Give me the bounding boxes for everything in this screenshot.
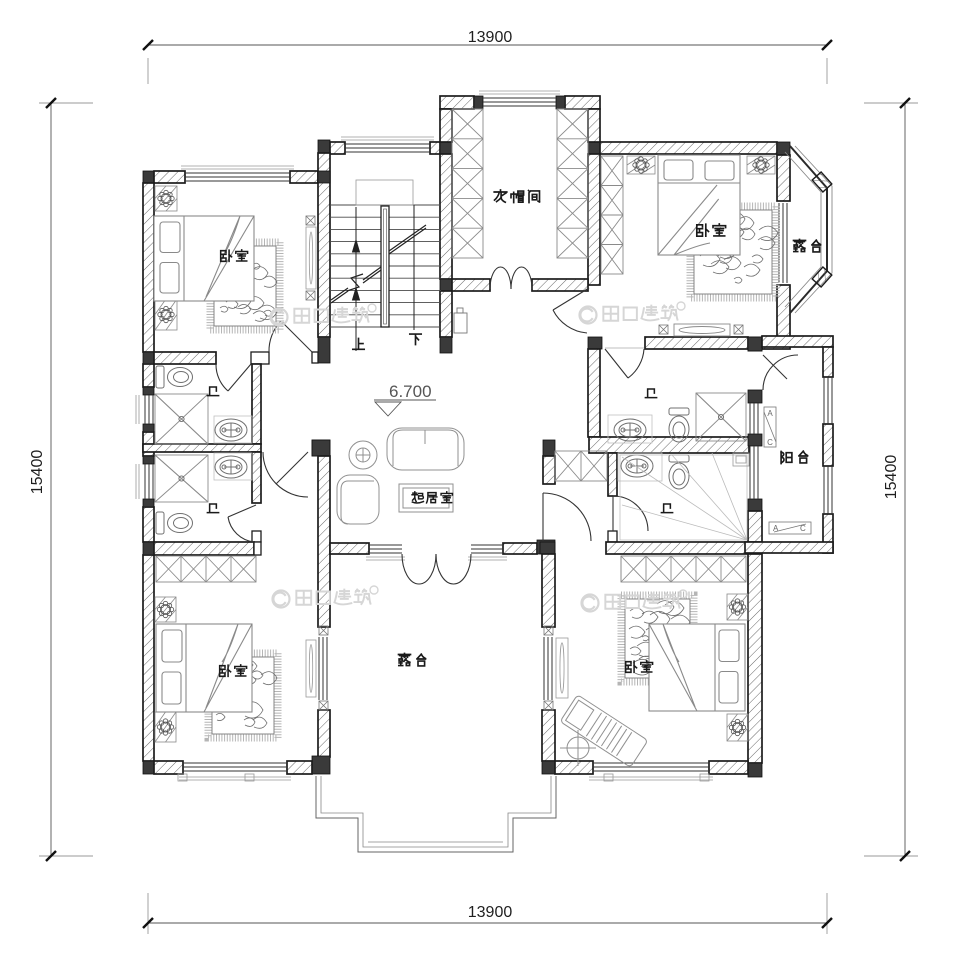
svg-text:13900: 13900 xyxy=(468,29,513,46)
svg-text:A: A xyxy=(773,524,779,533)
svg-text:C: C xyxy=(800,524,806,533)
svg-text:A: A xyxy=(767,409,773,418)
svg-text:6.700: 6.700 xyxy=(389,382,432,401)
svg-text:15400: 15400 xyxy=(29,450,46,495)
svg-text:15400: 15400 xyxy=(883,455,900,500)
svg-text:13900: 13900 xyxy=(468,904,513,921)
svg-text:C: C xyxy=(767,438,773,447)
